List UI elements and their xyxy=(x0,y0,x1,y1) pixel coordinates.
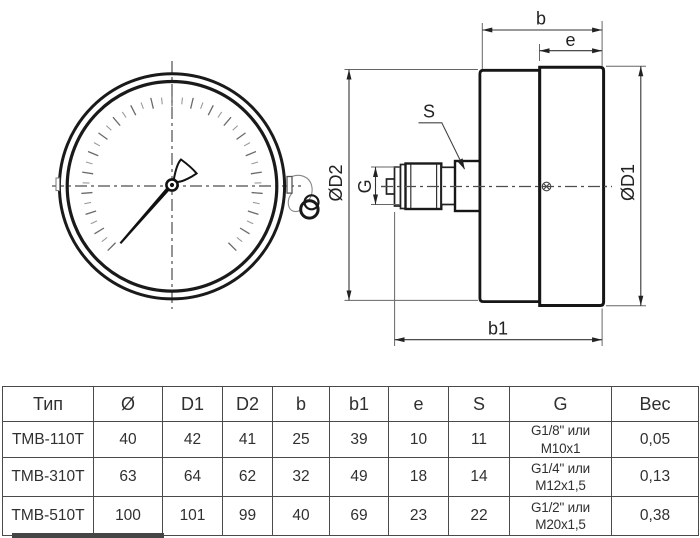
svg-text:b: b xyxy=(536,8,546,28)
svg-text:S: S xyxy=(423,102,435,122)
svg-text:ØD1: ØD1 xyxy=(618,164,638,201)
svg-text:ØD2: ØD2 xyxy=(326,164,346,201)
svg-text:b1: b1 xyxy=(488,318,508,338)
svg-text:G: G xyxy=(355,179,375,193)
svg-text:e: e xyxy=(565,30,575,50)
